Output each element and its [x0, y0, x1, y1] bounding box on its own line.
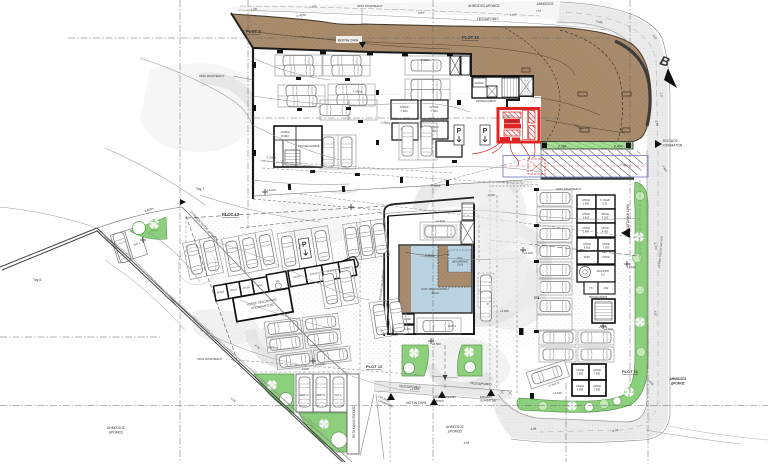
- svg-text:7.003: 7.003: [603, 245, 610, 249]
- svg-text:ΑΠΟΘ: ΑΠΟΘ: [601, 212, 609, 216]
- svg-text:ΕΙΣΟΔΟΣ: ΕΙΣΟΔΟΣ: [663, 139, 678, 143]
- svg-text:ΑΠΟΘ: ΑΠΟΘ: [593, 368, 601, 372]
- svg-text:1.582: 1.582: [577, 371, 584, 375]
- svg-text:+4.100: +4.100: [267, 188, 276, 192]
- svg-text:1.650: 1.650: [583, 201, 590, 205]
- svg-text:ΔΗΜΟΣΙΟΣ: ΔΗΜΟΣΙΟΣ: [107, 426, 125, 430]
- svg-text:ΕΙΣΟΔΟΣ ΠΕΖΩΝ: ΕΙΣΟΔΟΣ ΠΕΖΩΝ: [433, 395, 456, 399]
- svg-text:12m2: 12m2: [457, 263, 464, 267]
- svg-text:Χ. ΟΔΗΓ: Χ. ΟΔΗΓ: [600, 198, 611, 202]
- svg-text:-2.400m: -2.400m: [430, 183, 441, 188]
- svg-text:ΟΡΙΑ ΟΙΚΟΠΕΔΟΥ: ΟΡΙΑ ΟΙΚΟΠΕΔΟΥ: [357, 4, 383, 8]
- svg-text:-3.07: -3.07: [653, 310, 658, 317]
- svg-text:ΑΠΟΘ: ΑΠΟΘ: [504, 114, 514, 118]
- svg-text:ΑΠΟΘ: ΑΠΟΘ: [576, 384, 584, 388]
- svg-text:ΟΧΗΜΑΤΩΝ: ΟΧΗΜΑΤΩΝ: [480, 398, 496, 402]
- svg-text:-0.600m: -0.600m: [420, 58, 431, 62]
- svg-text:-4.88: -4.88: [463, 441, 470, 445]
- svg-text:ΓΚ: ΓΚ: [589, 286, 593, 290]
- svg-text:4.095: 4.095: [577, 387, 584, 391]
- svg-text:PLOT 11: PLOT 11: [622, 369, 639, 374]
- svg-text:ΟΡΙΑ ΟΙΚΟΠΕΔΟΥ: ΟΡΙΑ ΟΙΚΟΠΕΔΟΥ: [199, 74, 225, 78]
- svg-text:ΑΠΟΘ: ΑΠΟΘ: [602, 242, 610, 246]
- svg-text:ΑΠΟΘ: ΑΠΟΘ: [582, 212, 590, 216]
- svg-text:ΔΡΟΜΟΣ: ΔΡΟΜΟΣ: [448, 429, 463, 433]
- svg-text:ΔΗΜΟΣΙΟΣ: ΔΗΜΟΣΙΟΣ: [446, 425, 464, 429]
- svg-text:ΕΚΤΑ ΚΑΛΛΩΠΙΣΜΟΣ: ΕΚΤΑ ΚΑΛΛΩΠΙΣΜΟΣ: [352, 406, 356, 438]
- svg-text:-4.100: -4.100: [487, 193, 495, 197]
- svg-text:+4.100: +4.100: [627, 265, 636, 269]
- svg-text:ΑΠΟΘ: ΑΠΟΘ: [593, 384, 601, 388]
- svg-text:+4.100: +4.100: [316, 362, 325, 366]
- svg-text:0.900: 0.900: [418, 10, 425, 15]
- svg-text:ΑΝΑΨ/ΡΙΟ: ΑΝΑΨ/ΡΙΟ: [597, 269, 610, 273]
- svg-text:+4.100: +4.100: [500, 309, 509, 313]
- svg-text:ΚΑΤ 2: ΚΑΤ 2: [448, 324, 456, 328]
- svg-text:36m2: 36m2: [431, 291, 439, 295]
- svg-text:-4.500: -4.500: [301, 367, 309, 371]
- svg-text:ΚΟΙΝ: ΚΟΙΝ: [584, 255, 590, 259]
- svg-text:4.093: 4.093: [602, 215, 609, 219]
- svg-text:PLOT 13: PLOT 13: [222, 212, 240, 217]
- svg-text:-4.88: -4.88: [530, 426, 537, 431]
- svg-text:+4.100: +4.100: [604, 327, 613, 331]
- svg-text:ΑΠΟΘ: ΑΠΟΘ: [582, 198, 590, 202]
- svg-text:-1.900m: -1.900m: [352, 89, 363, 94]
- svg-text:8.003: 8.003: [584, 245, 591, 249]
- svg-text:0.403: 0.403: [614, 144, 623, 148]
- svg-text:ΑΝΑΤΟΛΙΚΗ ΟΨΗ: ΑΝΑΤΟΛΙΚΗ ΟΨΗ: [626, 203, 630, 232]
- svg-text:-1.900m: -1.900m: [266, 155, 277, 160]
- svg-text:7.401: 7.401: [400, 109, 408, 113]
- svg-text:ΑΠΟΘ: ΑΠΟΘ: [583, 242, 591, 246]
- svg-text:2.31: 2.31: [602, 201, 608, 205]
- svg-text:+4.200: +4.200: [435, 219, 445, 223]
- svg-text:ΟΧΗΜΑΤΩΝ: ΟΧΗΜΑΤΩΝ: [663, 144, 683, 148]
- svg-text:1.667: 1.667: [583, 215, 590, 219]
- svg-text:Ρ.: Ρ.: [487, 302, 490, 306]
- svg-text:ΠΡΟΘΑΛΑΜΟΣ: ΠΡΟΘΑΛΑΜΟΣ: [476, 99, 496, 103]
- svg-text:7.62: 7.62: [536, 9, 542, 13]
- svg-text:+4.100: +4.100: [524, 251, 533, 255]
- svg-text:ΝΟΤΙΑ ΟΨΗ: ΝΟΤΙΑ ΟΨΗ: [406, 401, 427, 405]
- svg-text:ΑΠΟΘ: ΑΠΟΘ: [601, 226, 609, 230]
- svg-text:1.667: 1.667: [583, 229, 590, 233]
- svg-text:Ταχ 7: Ταχ 7: [196, 187, 204, 191]
- svg-text:+4.100: +4.100: [553, 391, 562, 395]
- svg-text:ΚΑΤ 1: ΚΑΤ 1: [335, 394, 342, 397]
- svg-text:ΘΕΣΗ 2: ΘΕΣΗ 2: [299, 394, 309, 397]
- svg-text:ΒΟΡΙΑ ΟΨΗ: ΒΟΡΙΑ ΟΨΗ: [338, 39, 359, 43]
- svg-text:2.284: 2.284: [558, 144, 567, 148]
- svg-text:ΑΠΟΘ: ΑΠΟΘ: [475, 81, 485, 85]
- svg-text:ΑΠΟΘ: ΑΠΟΘ: [576, 368, 584, 372]
- svg-text:Ταχ 8: Ταχ 8: [33, 278, 41, 282]
- svg-text:ΑΠΟΘ: ΑΠΟΘ: [582, 226, 590, 230]
- svg-text:Α.2: Α.2: [601, 273, 605, 277]
- svg-text:ΔΗΜΟΣΙΟΣ: ΔΗΜΟΣΙΟΣ: [670, 377, 687, 381]
- svg-text:ΒΙΤΡΟ: ΒΙΤΡΟ: [436, 399, 444, 403]
- svg-text:7.301: 7.301: [430, 109, 438, 113]
- svg-text:ΔΡΟΜΟΣ: ΔΡΟΜΟΣ: [671, 381, 685, 385]
- svg-text:ΘΕΣΗ 1: ΘΕΣΗ 1: [316, 394, 326, 397]
- svg-text:+4.500: +4.500: [432, 342, 441, 346]
- svg-text:8.000: 8.000: [281, 134, 289, 138]
- svg-text:ΔΡΟΜΟΣ: ΔΡΟΜΟΣ: [109, 430, 124, 434]
- svg-text:ΔΗΜΟΣΙΟΣ: ΔΗΜΟΣΙΟΣ: [537, 2, 554, 6]
- svg-text:PLOT 9: PLOT 9: [246, 29, 261, 34]
- svg-text:4.093: 4.093: [602, 229, 609, 233]
- svg-text:+4.100: +4.100: [410, 387, 419, 391]
- svg-text:ΔΗΜΟΣΙΟΣ ΔΡΟΜΟΣ: ΔΗΜΟΣΙΟΣ ΔΡΟΜΟΣ: [468, 4, 499, 8]
- svg-text:ΑΠΟΘ: ΑΠΟΘ: [602, 255, 610, 259]
- svg-text:CW: CW: [604, 286, 609, 290]
- svg-text:ΧΩΡΟΣ: ΧΩΡΟΣ: [507, 120, 518, 124]
- svg-text:PLOT 12: PLOT 12: [366, 364, 383, 369]
- svg-text:ΟΡΙΑ ΟΙΚΟΠΕΔΟΥ: ΟΡΙΑ ΟΙΚΟΠΕΔΟΥ: [197, 357, 223, 361]
- svg-text:7.582: 7.582: [594, 371, 601, 375]
- svg-text:PLOT 10: PLOT 10: [462, 35, 480, 40]
- svg-text:ΟΡΙΑ ΟΙΚΟΠΕΔΟΥ: ΟΡΙΑ ΟΙΚΟΠΕΔΟΥ: [556, 187, 582, 191]
- svg-text:7.095: 7.095: [594, 387, 601, 391]
